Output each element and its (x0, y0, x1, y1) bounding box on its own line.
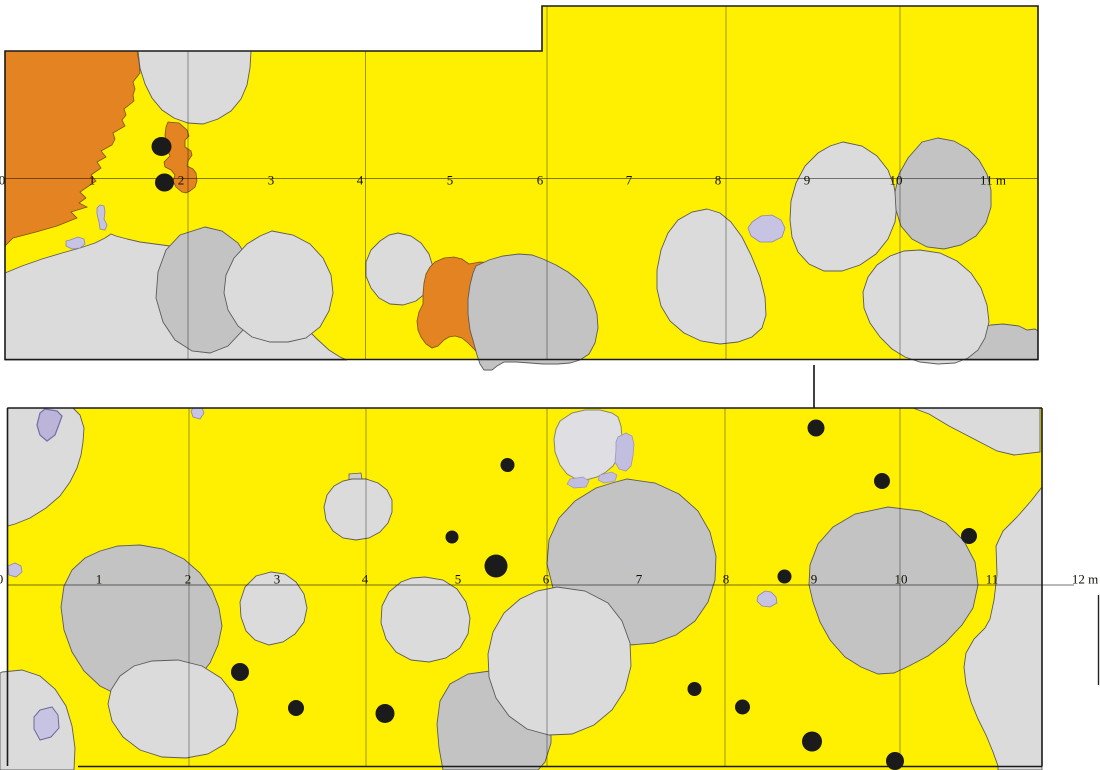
svg-text:8: 8 (715, 173, 722, 188)
svg-text:1: 1 (96, 572, 103, 587)
svg-text:6: 6 (537, 173, 544, 188)
svg-text:3: 3 (268, 173, 275, 188)
svg-text:1: 1 (89, 173, 96, 188)
svg-text:11: 11 (986, 572, 999, 587)
svg-text:7: 7 (636, 572, 643, 587)
svg-text:9: 9 (811, 572, 818, 587)
svg-text:7: 7 (626, 173, 633, 188)
svg-text:5: 5 (447, 173, 454, 188)
svg-text:11 m: 11 m (980, 173, 1006, 188)
svg-text:0: 0 (0, 572, 3, 587)
svg-text:8: 8 (723, 572, 730, 587)
svg-text:5: 5 (455, 572, 462, 587)
svg-text:4: 4 (357, 173, 364, 188)
svg-text:4: 4 (362, 572, 369, 587)
svg-text:12 m: 12 m (1072, 572, 1098, 587)
svg-text:3: 3 (274, 572, 281, 587)
svg-text:10: 10 (890, 173, 903, 188)
svg-text:9: 9 (804, 173, 811, 188)
svg-text:2: 2 (178, 173, 185, 188)
svg-text:2: 2 (185, 572, 192, 587)
svg-text:10: 10 (895, 572, 908, 587)
svg-text:6: 6 (543, 572, 550, 587)
